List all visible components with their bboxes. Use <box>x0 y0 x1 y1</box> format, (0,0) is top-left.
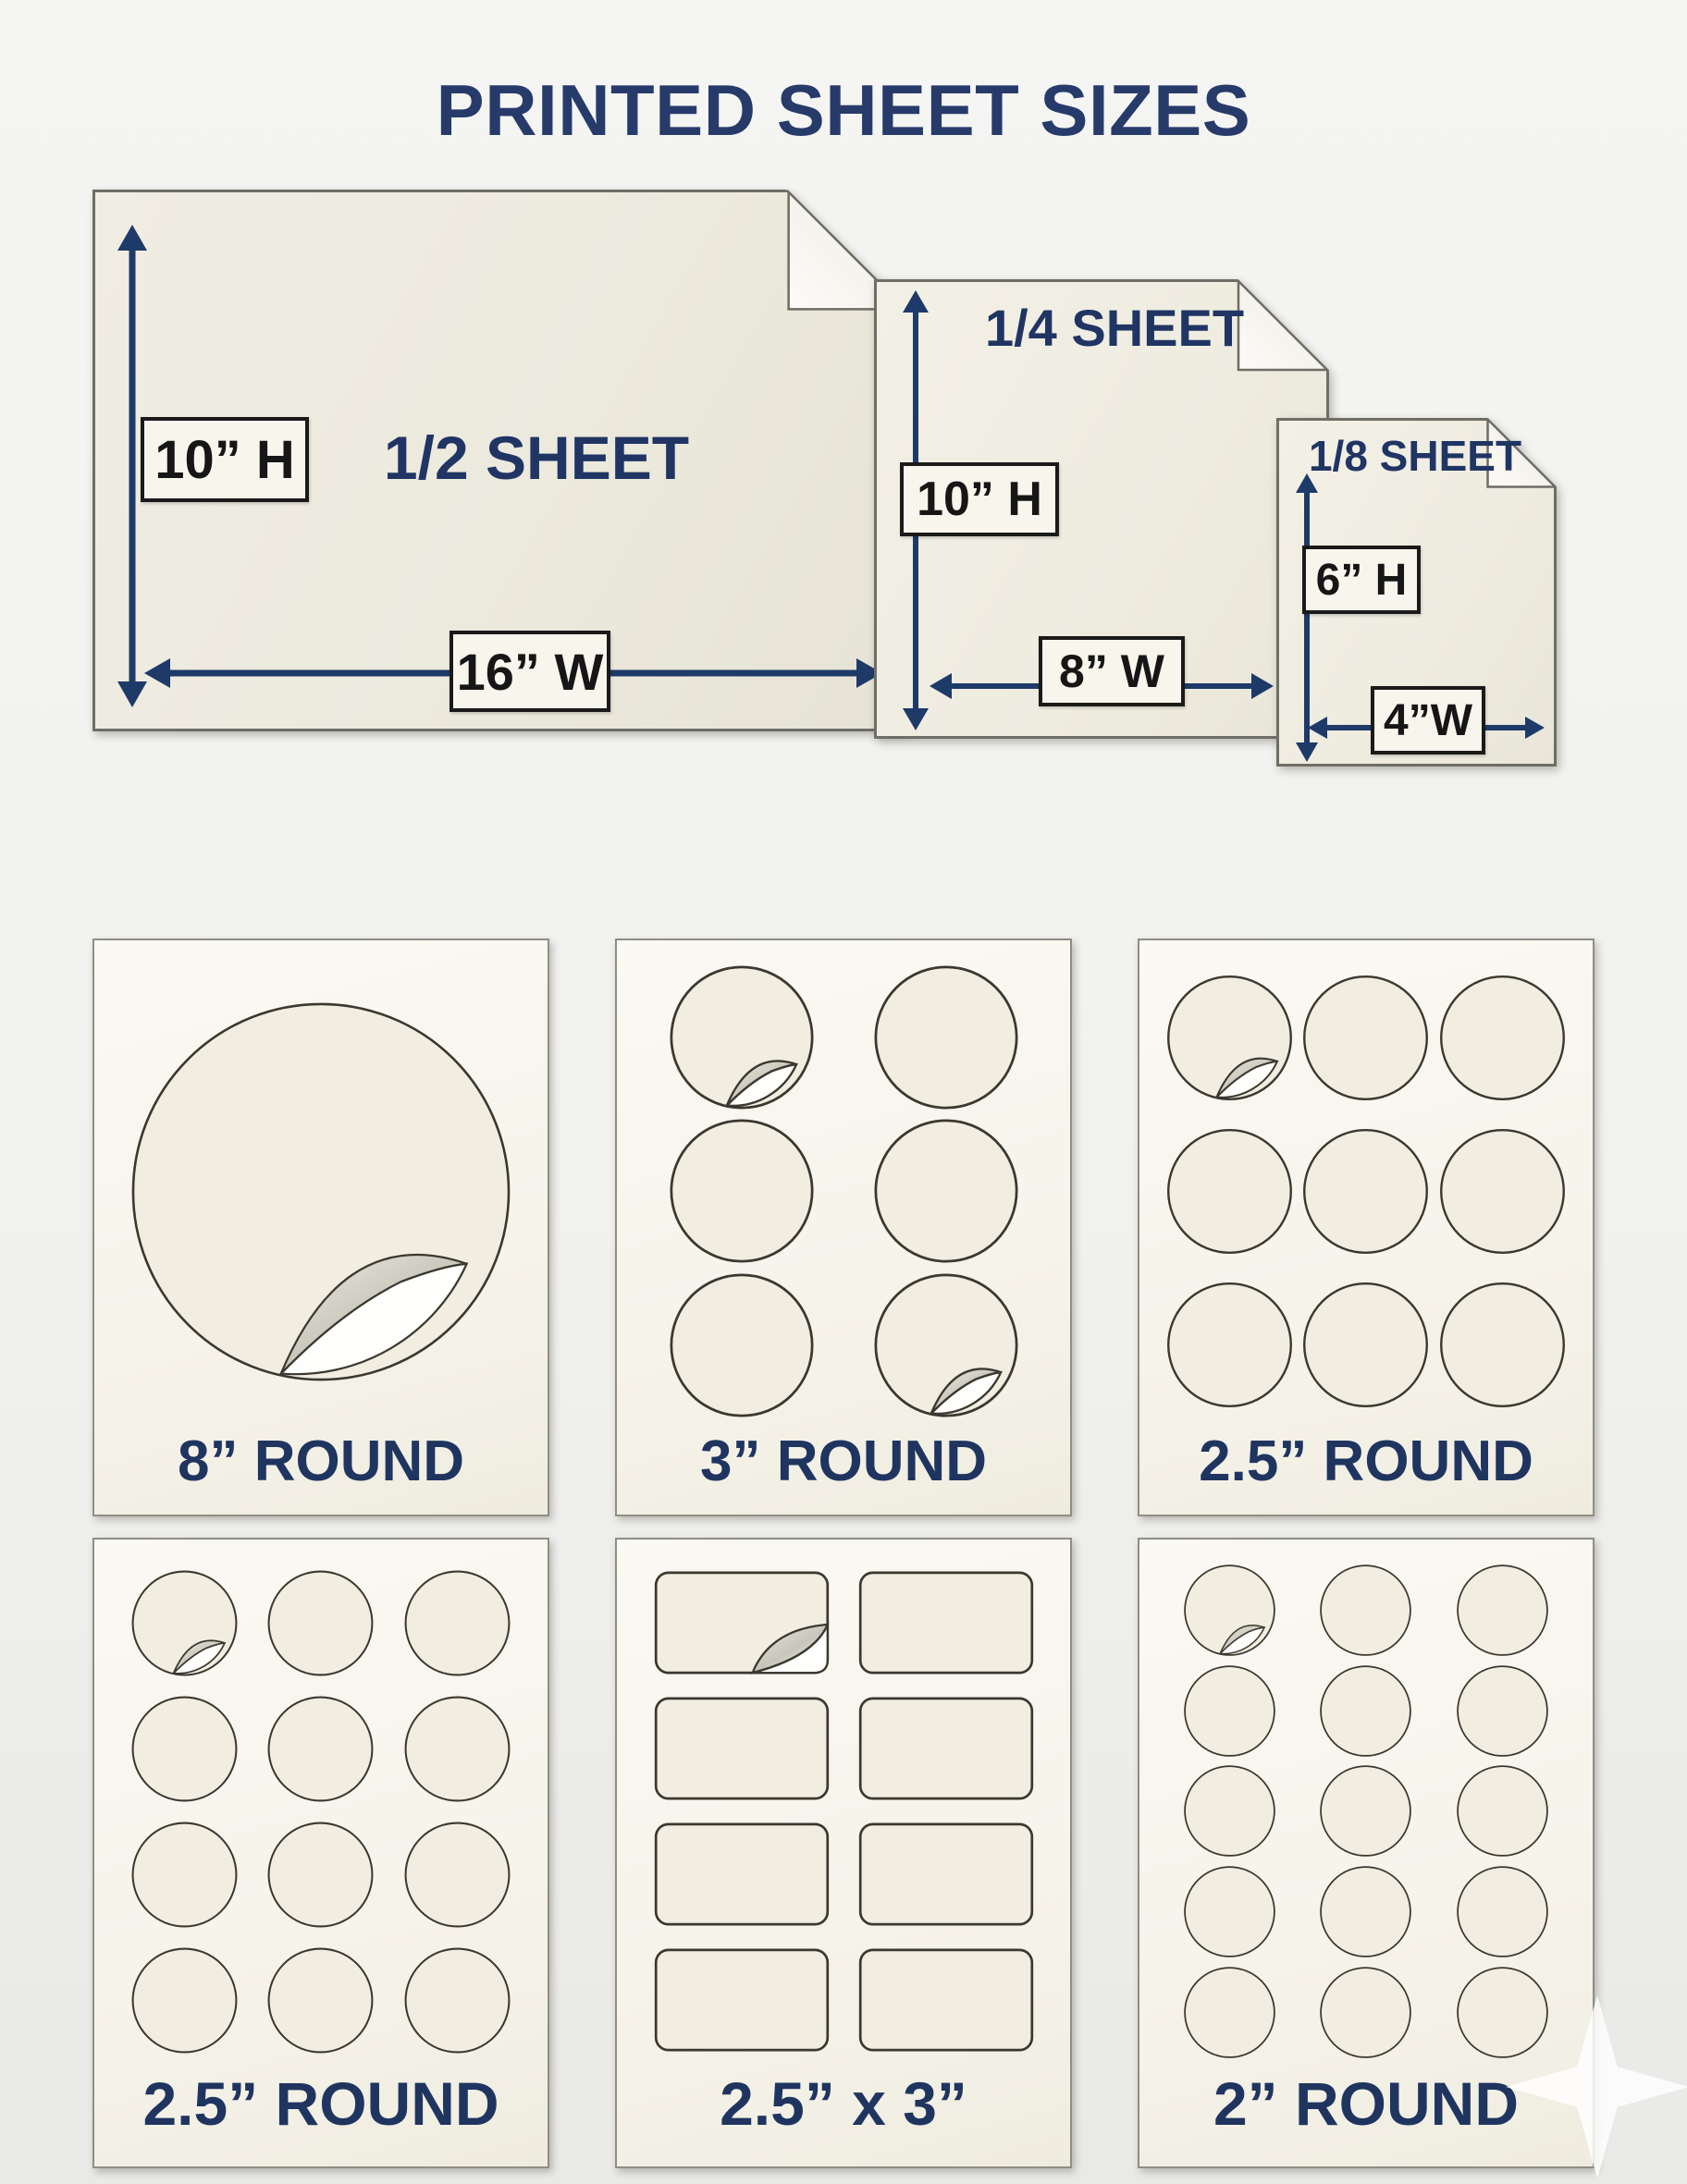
peeled-round-sticker <box>121 992 521 1392</box>
sticker-sheet-3in-round: 3” ROUND <box>615 939 1072 1516</box>
sticker-grid <box>1162 961 1570 1422</box>
half-sheet-diagram: 10” H 1/2 SHEET 16” W <box>92 190 908 731</box>
round-sticker <box>402 1820 512 1930</box>
sticker-sheet-2-5x3in-rect: 2.5” x 3” <box>615 1538 1072 2168</box>
quarter-sheet-name: 1/4 SHEET <box>920 298 1309 358</box>
round-sticker <box>402 1945 512 2055</box>
round-sticker <box>129 1820 240 1930</box>
round-sticker <box>871 1116 1021 1266</box>
sticker-sheet-8in-round: 8” ROUND <box>92 939 549 1516</box>
eighth-sheet-name: 1/8 SHEET <box>1289 431 1541 481</box>
round-sticker <box>871 963 1021 1112</box>
rect-sticker <box>856 1569 1036 1676</box>
sticker-sheet-2-5in-round-12up: 2.5” ROUND <box>92 1538 549 2168</box>
sheet-size-label: 2.5” ROUND <box>94 2068 548 2139</box>
sheet-size-label: 3” ROUND <box>617 1429 1070 1494</box>
sticker-sheet-2-5in-round-9up: 2.5” ROUND <box>1138 939 1595 1516</box>
round-sticker <box>1318 1663 1413 1759</box>
sticker-grid <box>1162 1560 1570 2063</box>
round-sticker <box>1164 1126 1295 1257</box>
round-sticker <box>1318 1563 1413 1658</box>
round-sticker <box>402 1694 512 1804</box>
page-title: PRINTED SHEET SIZES <box>0 68 1687 153</box>
height-dimension-label: 10” H <box>900 462 1059 536</box>
sticker-grid <box>639 961 1048 1422</box>
peeled-round-sticker <box>667 963 817 1112</box>
round-sticker <box>1455 1663 1550 1759</box>
peeled-round-sticker <box>871 1270 1021 1420</box>
round-sticker <box>1300 1280 1431 1410</box>
round-sticker <box>1455 1563 1550 1658</box>
height-dimension-label: 6” H <box>1302 546 1421 614</box>
round-sticker <box>1455 1864 1550 1959</box>
round-sticker <box>265 1694 376 1804</box>
round-sticker <box>1437 973 1568 1103</box>
rect-sticker <box>652 1946 831 2054</box>
sheet-size-label: 2.5” ROUND <box>1139 1429 1593 1494</box>
rect-sticker <box>652 1695 831 1802</box>
quarter-sheet-diagram: 1/4 SHEET 10” H 8” W <box>874 279 1329 739</box>
half-sheet-name: 1/2 SHEET <box>268 423 805 493</box>
rect-sticker <box>856 1695 1036 1802</box>
round-sticker <box>1164 1280 1295 1410</box>
sheet-size-label: 2.5” x 3” <box>617 2068 1070 2139</box>
round-sticker <box>1318 1763 1413 1859</box>
sticker-sheet-2in-round: 2” ROUND <box>1138 1538 1595 2168</box>
round-sticker <box>265 1820 376 1930</box>
sticker-grid <box>117 961 525 1422</box>
round-sticker <box>1182 1763 1277 1859</box>
round-sticker <box>1437 1126 1568 1257</box>
width-dimension-label: 4”W <box>1371 686 1485 755</box>
round-sticker <box>1455 1965 1550 2060</box>
round-sticker <box>1300 1126 1431 1257</box>
round-sticker <box>1182 1965 1277 2060</box>
round-sticker <box>1318 1864 1413 1959</box>
round-sticker <box>129 1945 240 2055</box>
round-sticker <box>1182 1663 1277 1759</box>
peeled-round-sticker <box>1182 1563 1277 1658</box>
rect-sticker <box>856 1821 1036 1928</box>
sheet-size-label: 8” ROUND <box>94 1429 548 1494</box>
height-dimension-label: 10” H <box>141 417 309 502</box>
round-sticker <box>1437 1280 1568 1410</box>
round-sticker <box>402 1568 512 1678</box>
sticker-grid <box>639 1560 1048 2063</box>
eighth-sheet-diagram: 1/8 SHEET 6” H 4”W <box>1276 418 1557 767</box>
peeled-rect-sticker <box>652 1569 831 1676</box>
printed-sheet-sizes-infographic: PRINTED SHEET SIZES 10” H 1/2 SHEET 16” … <box>0 0 1687 2184</box>
rect-sticker <box>856 1946 1036 2054</box>
peeled-round-sticker <box>129 1568 240 1678</box>
round-sticker <box>265 1945 376 2055</box>
rect-sticker <box>652 1821 831 1928</box>
round-sticker <box>667 1270 817 1420</box>
round-sticker <box>265 1568 376 1678</box>
peeled-round-sticker <box>1164 973 1295 1103</box>
round-sticker <box>1318 1965 1413 2060</box>
round-sticker <box>1300 973 1431 1103</box>
round-sticker <box>1182 1864 1277 1959</box>
round-sticker <box>129 1694 240 1804</box>
sheet-size-label: 2” ROUND <box>1139 2068 1593 2139</box>
round-sticker <box>1455 1763 1550 1859</box>
sticker-grid <box>117 1560 525 2063</box>
round-sticker <box>667 1116 817 1266</box>
width-dimension-label: 16” W <box>449 631 610 712</box>
width-dimension-label: 8” W <box>1039 636 1185 706</box>
